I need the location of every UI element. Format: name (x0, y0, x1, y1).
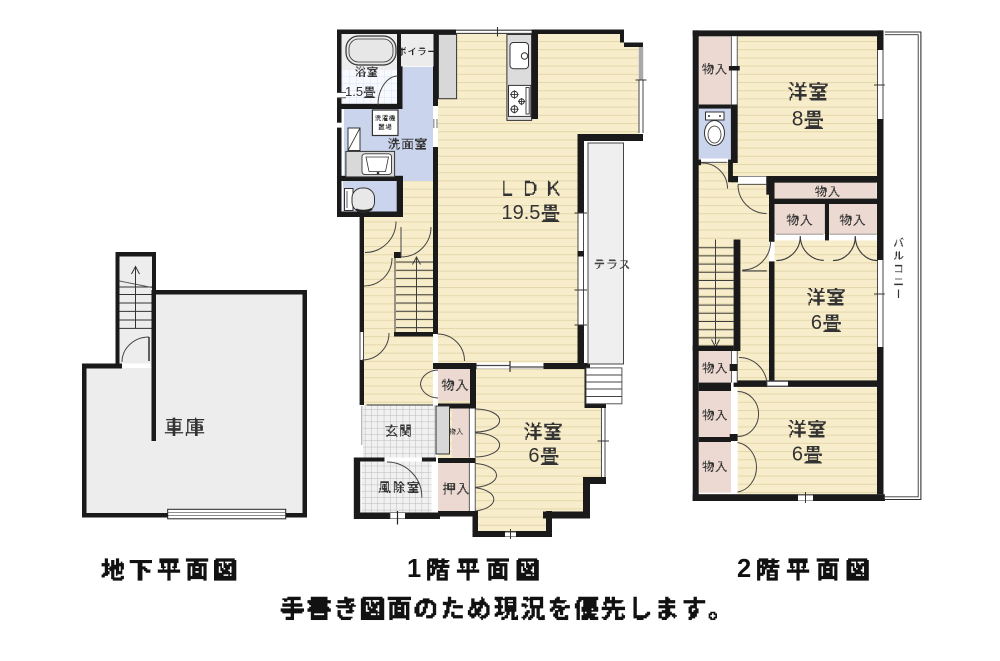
svg-text:1: 1 (407, 555, 421, 583)
svg-text:6: 6 (528, 445, 539, 467)
svg-text:1.5: 1.5 (345, 84, 363, 99)
svg-text:8: 8 (792, 108, 804, 131)
svg-text:6: 6 (811, 312, 822, 334)
svg-text:19.5: 19.5 (502, 202, 541, 224)
svg-text:2: 2 (737, 555, 751, 583)
svg-text:6: 6 (792, 443, 803, 465)
